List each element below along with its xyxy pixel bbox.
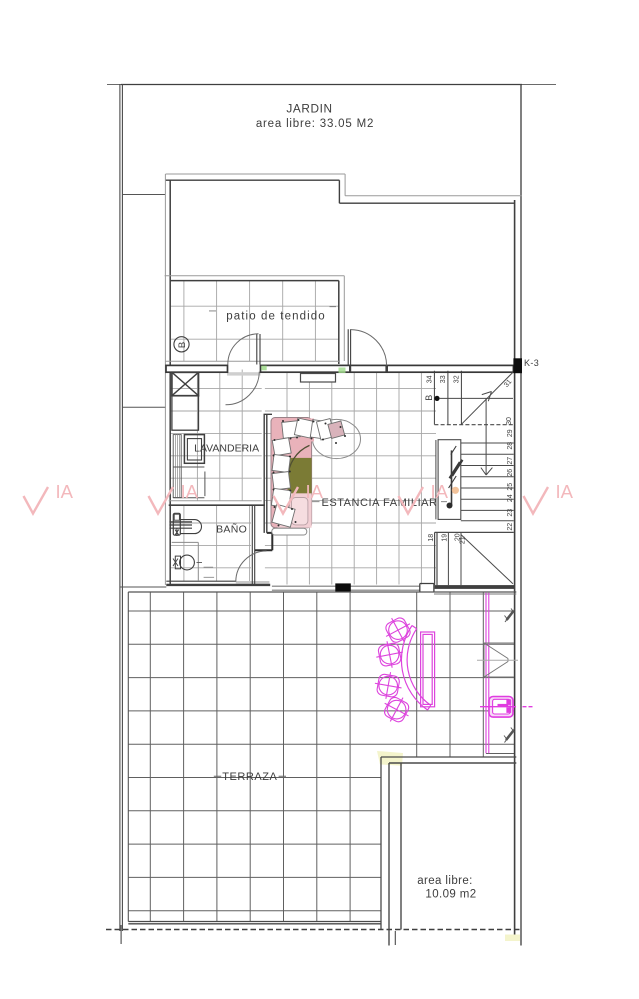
svg-text:IA: IA — [556, 481, 574, 502]
svg-text:K-3: K-3 — [524, 358, 539, 368]
svg-text:26: 26 — [507, 469, 514, 477]
svg-text:B: B — [177, 342, 188, 348]
svg-text:23: 23 — [507, 509, 514, 517]
svg-text:28: 28 — [507, 442, 514, 450]
svg-text:32: 32 — [454, 375, 461, 383]
svg-text:IA: IA — [181, 481, 199, 502]
svg-text:21: 21 — [460, 536, 467, 544]
svg-text:22: 22 — [507, 523, 514, 531]
svg-text:18: 18 — [428, 534, 435, 542]
svg-text:area libre:: area libre: — [417, 875, 473, 887]
svg-text:25: 25 — [507, 483, 514, 491]
svg-text:B: B — [424, 395, 434, 401]
svg-text:LAVANDERIA: LAVANDERIA — [194, 443, 259, 455]
svg-text:24: 24 — [507, 494, 514, 502]
svg-text:34: 34 — [427, 375, 434, 383]
svg-text:31: 31 — [503, 378, 513, 389]
svg-text:TERRAZA: TERRAZA — [222, 771, 277, 783]
svg-text:ESTANCIA FAMILIAR: ESTANCIA FAMILIAR — [321, 497, 437, 509]
svg-text:IA: IA — [431, 481, 449, 502]
svg-text:IA: IA — [306, 481, 324, 502]
svg-text:BAÑO: BAÑO — [216, 522, 247, 535]
svg-text:27: 27 — [507, 457, 514, 465]
svg-text:area libre: 33.05 M2: area libre: 33.05 M2 — [256, 118, 374, 130]
svg-text:10.09 m2: 10.09 m2 — [425, 889, 476, 901]
svg-text:33: 33 — [440, 375, 447, 383]
svg-text:IA: IA — [56, 481, 74, 502]
svg-text:29: 29 — [507, 429, 514, 437]
svg-text:patio de tendido: patio de tendido — [226, 311, 325, 323]
svg-text:19: 19 — [441, 534, 448, 542]
svg-text:JARDIN: JARDIN — [286, 102, 332, 116]
svg-text:30: 30 — [506, 417, 513, 425]
